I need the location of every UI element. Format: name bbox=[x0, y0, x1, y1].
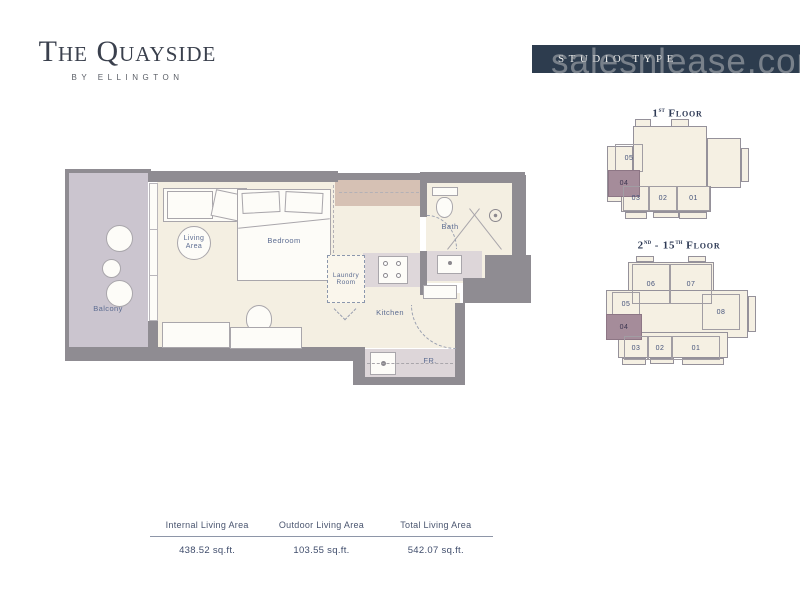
living-area-badge: Living Area bbox=[177, 226, 211, 260]
footprint-balcony-tab bbox=[625, 212, 647, 219]
title-text: Floor bbox=[683, 240, 721, 252]
footprint-top-tab bbox=[671, 119, 689, 127]
floor-plan: Laundry Room Living Area Balcony Bedroom… bbox=[65, 163, 530, 393]
ceiling-break-line bbox=[333, 185, 334, 253]
bedroom-label: Bedroom bbox=[237, 237, 331, 246]
stove-burner bbox=[383, 261, 388, 266]
unit-cell-02: 02 bbox=[648, 336, 672, 360]
unit-number: 02 bbox=[659, 195, 668, 202]
pillow bbox=[241, 191, 280, 214]
wardrobe-top-wall bbox=[335, 173, 422, 180]
desk-cabinet-left bbox=[162, 322, 230, 348]
area-table-value-row: 438.52 sq.ft. 103.55 sq.ft. 542.07 sq.ft… bbox=[150, 545, 493, 556]
bath-partition-upper bbox=[420, 183, 427, 217]
shower-head bbox=[489, 209, 502, 222]
area-value: 438.52 sq.ft. bbox=[150, 545, 264, 556]
brand-logo: The Quayside BY ELLINGTON bbox=[30, 36, 225, 82]
balcony-chair bbox=[106, 280, 133, 307]
unit-cell-01: 01 bbox=[677, 186, 710, 211]
area-value: 542.07 sq.ft. bbox=[379, 545, 493, 556]
unit-cell-03: 03 bbox=[624, 336, 648, 360]
sofa-cushion bbox=[167, 191, 213, 219]
title-number: - 15 bbox=[651, 240, 675, 252]
unit-cell-02: 02 bbox=[649, 186, 677, 211]
keyplan-floor2-title: 2nd - 15th Floor bbox=[590, 238, 768, 252]
door-frame-tick bbox=[149, 229, 158, 230]
unit-number: 08 bbox=[717, 309, 726, 316]
unit-number: 05 bbox=[625, 155, 634, 162]
footprint-top-tab bbox=[635, 119, 651, 127]
kitchen-right-wall bbox=[455, 303, 465, 383]
footprint-right-tab bbox=[748, 296, 756, 332]
brand-title: The Quayside bbox=[30, 36, 225, 68]
balcony-table bbox=[102, 259, 121, 278]
stove bbox=[378, 256, 408, 284]
unit-cell-08: 08 bbox=[702, 294, 740, 330]
bath-right-wall bbox=[512, 175, 526, 261]
keyplan-floor1: 1st Floor 05 04 03 02 01 bbox=[595, 100, 760, 228]
exterior-corner-step bbox=[463, 278, 487, 303]
wardrobe-dashed-line bbox=[339, 192, 419, 193]
kitchen-label: Kitchen bbox=[355, 309, 425, 318]
laundry-room-label: Laundry Room bbox=[328, 272, 364, 287]
keyplan-floor1-title: 1st Floor bbox=[595, 106, 760, 120]
vestibule-bottom-wall bbox=[353, 377, 465, 385]
unit-number: 06 bbox=[647, 281, 656, 288]
unit-number: 02 bbox=[656, 345, 665, 352]
laundry-room-box: Laundry Room bbox=[327, 255, 365, 303]
stove-burner bbox=[383, 273, 388, 278]
stove-burner bbox=[396, 261, 401, 266]
keyplan-floor2-15: 2nd - 15th Floor 06 07 05 04 08 03 02 01 bbox=[590, 238, 768, 380]
door-frame-tick bbox=[149, 275, 158, 276]
toilet-bowl bbox=[436, 197, 453, 218]
footprint-balcony-tab bbox=[679, 212, 707, 219]
unit-cell-05: 05 bbox=[612, 292, 640, 316]
brand-subtitle: BY ELLINGTON bbox=[30, 73, 225, 82]
balcony-top-wall bbox=[65, 169, 151, 173]
area-header: Total Living Area bbox=[379, 520, 493, 530]
vestibule-left-wall bbox=[353, 347, 365, 379]
top-wall bbox=[148, 171, 338, 182]
stove-burner bbox=[396, 273, 401, 278]
sink-drain bbox=[448, 261, 452, 265]
area-value: 103.55 sq.ft. bbox=[264, 545, 378, 556]
balcony-sliding-door bbox=[149, 183, 158, 321]
balcony-label: Balcony bbox=[77, 305, 139, 314]
bath-top-wall bbox=[420, 172, 525, 183]
unit-number: 04 bbox=[620, 324, 629, 331]
title-ordinal: th bbox=[675, 238, 682, 246]
unit-number: 03 bbox=[632, 195, 641, 202]
unit-number: 03 bbox=[632, 345, 641, 352]
unit-cell-01: 01 bbox=[672, 336, 720, 360]
area-table-header-row: Internal Living Area Outdoor Living Area… bbox=[150, 520, 493, 530]
footprint-balcony-tab bbox=[653, 212, 679, 218]
unit-number: 01 bbox=[692, 345, 701, 352]
unit-number: 07 bbox=[687, 281, 696, 288]
unit-number: 05 bbox=[622, 301, 631, 308]
bottom-wall bbox=[65, 347, 365, 361]
desk-cabinet-right bbox=[230, 327, 302, 349]
exterior-corner-block bbox=[485, 255, 531, 303]
balcony-chair bbox=[106, 225, 133, 252]
bath-label: Bath bbox=[433, 223, 467, 232]
footprint-right-wing bbox=[707, 138, 741, 188]
fridge-label: FR. bbox=[413, 357, 447, 366]
unit-cell-05: 05 bbox=[615, 144, 643, 172]
balcony-left-wall bbox=[65, 169, 69, 355]
wardrobe bbox=[335, 180, 422, 206]
unit-cell-03: 03 bbox=[623, 186, 649, 211]
watermark-text: salesnlease.com bbox=[551, 42, 800, 82]
footprint-top-tab bbox=[636, 256, 654, 262]
area-header: Internal Living Area bbox=[150, 520, 264, 530]
footprint-right-tab bbox=[741, 148, 749, 182]
title-text: Floor bbox=[665, 108, 703, 120]
area-table-divider bbox=[150, 536, 493, 537]
living-area-label: Living Area bbox=[178, 235, 210, 251]
kitchen-cabinet bbox=[423, 285, 457, 299]
area-header: Outdoor Living Area bbox=[264, 520, 378, 530]
footprint-top-tab bbox=[688, 256, 706, 262]
pillow bbox=[284, 191, 323, 214]
toilet-tank bbox=[432, 187, 458, 196]
area-summary-table: Internal Living Area Outdoor Living Area… bbox=[150, 520, 493, 556]
unit-number: 01 bbox=[689, 195, 698, 202]
